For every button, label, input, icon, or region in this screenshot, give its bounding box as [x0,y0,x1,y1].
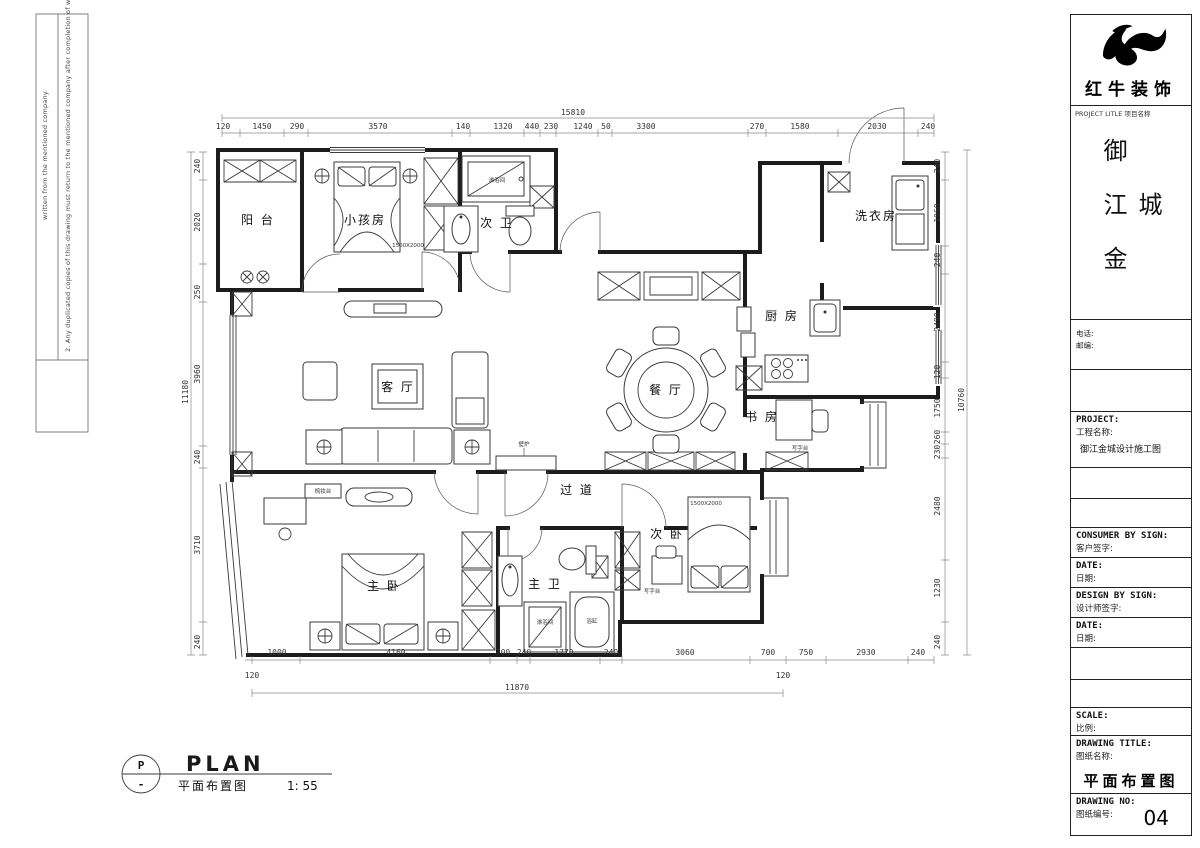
room-label-master: 主 卧 [367,579,401,593]
dim-top-12: 1580 [790,122,809,131]
drawing-sheet: 阳 台 小孩房 次 卫 洗衣房 厨 房 餐 厅 客 厅 书 房 过 道 主 卧 … [0,0,1200,848]
dim-left-2: 250 [193,285,202,300]
room-label-kids: 小孩房 [344,212,386,227]
room-label-study: 书 房 [745,409,779,424]
consumer-sign-cn: 客户签字: [1071,541,1191,554]
kids-bed [334,162,400,252]
drawing-title-en: DRAWING TITLE: [1071,736,1191,749]
company-name: 红牛装饰 [1071,75,1191,100]
dim-right-6: 260 [933,430,942,445]
dim-bottom-8: 750 [799,648,814,657]
date2-section: DATE: 日期: [1071,617,1191,648]
master-bedroom-furniture [264,484,458,650]
plan-title-cn: 平面布置图 [178,779,248,793]
scale-en: SCALE: [1071,708,1191,721]
bedroom2-furniture [652,497,750,592]
label-dresser: 梳妆台 [315,487,332,495]
label-fireplace: 壁炉 [518,440,530,448]
dim-left-0: 240 [193,159,202,174]
postcode-label: 邮编: [1071,339,1191,351]
margin-strip-frame [36,14,88,432]
drawing-no-en: DRAWING NO: [1071,794,1191,807]
scale-cn: 比例: [1071,721,1191,734]
dim-bottom-5: 240 [604,648,619,657]
label-kids-bed-size: 1500X2000 [392,243,424,249]
contact-section: 电话: 邮编: [1071,319,1191,370]
project-label-en: PROJECT: [1071,412,1191,425]
dim-left-3: 3960 [193,364,202,383]
dim-top-3: 3570 [368,122,387,131]
dim-top-0: 120 [216,122,231,131]
consumer-sign-en: CONSUMER BY SIGN: [1071,528,1191,541]
dim-right-7: 230 [933,445,942,460]
company-logo-icon [1092,19,1170,71]
dim-top-total: 15810 [561,108,585,117]
footer-title: P - PLAN 平面布置图 1: 55 [122,752,332,793]
design-sign-section: DESIGN BY SIGN: 设计师签字: [1071,587,1191,618]
dim-right-2: 240 [933,253,942,268]
dim-top-9: 50 [601,122,611,131]
label-master-shower: 淋浴间 [537,618,554,626]
room-label-corridor: 过 道 [560,483,594,497]
date1-section: DATE: 日期: [1071,557,1191,588]
dim-right-total: 10760 [957,388,966,412]
design-sign-cn: 设计师签字: [1071,601,1191,614]
margin-note-2: 2. Any duplicated copies of this drawing… [64,0,72,352]
project-value: 御江金城设计施工图 [1071,438,1191,455]
windows [220,145,943,659]
guest-vanity [444,206,478,252]
margin-note-1: written from the mentioned company. [41,90,49,220]
label-bathtub: 浴缸 [586,617,598,625]
living-seating [303,352,490,464]
empty-section-5 [1071,679,1191,708]
dim-right-1: 1960 [933,203,942,222]
dim-left-4: 240 [193,450,202,465]
dim-right-3: 2490 [933,312,942,331]
label-guest-shower: 淋浴间 [489,176,506,184]
empty-section-3 [1071,498,1191,528]
project-name-vertical: 御江金城 [1096,118,1166,304]
dim-top-11: 270 [750,122,765,131]
dim-top-7: 230 [544,122,559,131]
dimensions-top: 15810 120 1450 290 3570 140 1320 440 230… [216,108,936,137]
room-label-laundry: 洗衣房 [855,208,897,223]
kitchen-sink [810,300,840,336]
dim-top-14: 240 [921,122,936,131]
drawing-no-section: DRAWING NO: 图纸编号: 04 [1071,793,1191,836]
room-label-dining: 餐 厅 [649,382,683,397]
plan-title-en: PLAN [186,752,265,776]
dim-bottom-10: 240 [911,648,926,657]
study-desk [776,400,828,440]
dim-top-2: 290 [290,122,305,131]
consumer-sign-section: CONSUMER BY SIGN: 客户签字: [1071,527,1191,558]
title-block: 红牛装饰 PROJECT LITLE 项目名称 御江金城 电话: 邮编: PRO… [1070,14,1192,836]
empty-section-2 [1071,467,1191,499]
drawing-title-cn: 图纸名称: [1071,749,1191,762]
subtitle-section: PROJECT LITLE 项目名称 [1071,105,1191,119]
kitchen-stove [765,355,808,382]
dim-bottom-9: 2930 [856,648,875,657]
dim-right-9: 1230 [933,578,942,597]
design-sign-en: DESIGN BY SIGN: [1071,588,1191,601]
tv-cabinet [344,301,442,317]
floorplan-canvas: 阳 台 小孩房 次 卫 洗衣房 厨 房 餐 厅 客 厅 书 房 过 道 主 卧 … [0,0,1200,848]
dim-left-total: 11180 [181,380,190,404]
empty-section-1 [1071,369,1191,412]
dim-top-4: 140 [456,122,471,131]
plan-bubble-bottom: - [138,778,145,791]
dim-bottom-2: 700 [496,648,511,657]
laundry-sink [892,176,928,250]
dim-bottom-4: 1770 [554,648,573,657]
label-bedroom2-desk: 写字台 [644,587,661,595]
dim-right-5: 1750 [933,398,942,417]
dim-right-0: 240 [933,159,942,174]
dim-top-5: 1320 [493,122,512,131]
date1-cn: 日期: [1071,571,1191,584]
dim-bottom-1: 4160 [386,648,405,657]
scale-section: SCALE: 比例: [1071,707,1191,736]
room-label-master-bath: 主 卫 [528,577,562,591]
room-label-guest-bath: 次 卫 [480,216,514,230]
dim-right-8: 2480 [933,496,942,515]
plant-icon [241,271,269,283]
dim-bottom-0: 1000 [267,648,286,657]
dim-bottom-total: 11870 [505,683,529,692]
logo-section: 红牛装饰 [1071,15,1191,105]
room-label-bedroom2: 次 卧 [650,527,684,541]
room-label-balcony: 阳 台 [241,212,275,227]
dim-top-13: 2030 [867,122,886,131]
label-study-desk: 写字台 [792,444,809,452]
empty-section-4 [1071,647,1191,680]
drawing-title-section: DRAWING TITLE: 图纸名称: 平面布置图 [1071,735,1191,794]
dimensions-left: 11180 240 2020 250 3960 240 3710 240 [181,152,207,655]
date2-en: DATE: [1071,618,1191,631]
project-name-section: 御江金城 [1071,118,1191,319]
dim-left-5: 3710 [193,535,202,554]
dim-bottom-sub-1: 120 [776,671,791,680]
room-label-living: 客 厅 [381,379,415,394]
plan-scale: 1: 55 [287,779,318,793]
dim-bottom-7: 700 [761,648,776,657]
dim-left-1: 2020 [193,212,202,231]
dim-top-10: 3300 [636,122,655,131]
fireplace-niche [496,448,556,470]
walls [218,150,938,655]
dim-top-6: 440 [525,122,540,131]
dim-top-8: 1240 [573,122,592,131]
dim-top-1: 1450 [252,122,271,131]
dim-bottom-sub-0: 120 [245,671,260,680]
dim-right-4: 120 [933,365,942,380]
phone-label: 电话: [1071,320,1191,339]
label-bed2-size: 1500X2000 [690,501,722,507]
drawing-no-value: 04 [1144,806,1169,830]
date2-cn: 日期: [1071,631,1191,644]
furniture [241,156,928,652]
drawing-no-cn: 图纸编号: [1071,807,1191,820]
plan-bubble-top: P [138,759,145,772]
room-label-kitchen: 厨 房 [765,308,799,323]
project-label-cn: 工程名称: [1071,425,1191,438]
drawing-title-value: 平面布置图 [1071,762,1191,791]
dim-bottom-3: 240 [517,648,532,657]
project-section: PROJECT: 工程名称: 御江金城设计施工图 [1071,411,1191,468]
dim-left-6: 240 [193,635,202,650]
date1-en: DATE: [1071,558,1191,571]
dim-bottom-6: 3060 [675,648,694,657]
dim-right-10: 240 [933,635,942,650]
